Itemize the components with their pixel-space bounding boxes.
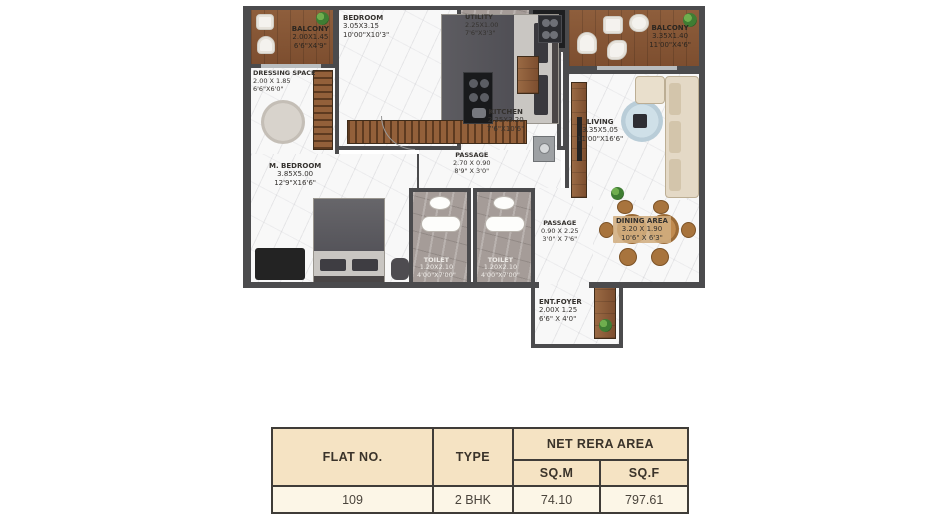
- balcony-chair-icon: [629, 14, 649, 32]
- door-swing-icon: [381, 116, 415, 150]
- bed-icon: [313, 198, 385, 284]
- floor-plan: BALCONY 2.00X1.45 6'6"X4'9" DRESSING SPA…: [243, 4, 705, 350]
- dining-chair-icon: [599, 222, 614, 238]
- outer-wall-right: [699, 6, 705, 288]
- room-dim-ft: 10'6" X 6'3": [616, 234, 668, 242]
- room-label: M. BEDROOM 3.85X5.00 12'9"X16'6": [269, 162, 321, 187]
- col-header-net-rera-area: NET RERA AREA: [513, 428, 688, 460]
- room-dim-m: 2.25X3.20: [487, 116, 524, 124]
- room-balcony-left: BALCONY 2.00X1.45 6'6"X4'9": [247, 6, 337, 68]
- rug-icon: [261, 100, 305, 144]
- room-dim-m: 3.85X5.00: [269, 170, 321, 178]
- outer-wall-bottom-right: [589, 282, 705, 288]
- washing-machine-icon: [533, 136, 555, 162]
- cell-flat-no: 109: [272, 486, 433, 513]
- room-name: ENT.FOYER: [539, 298, 582, 306]
- sofa-icon: [665, 76, 699, 198]
- room-label: LIVING 3.35X5.05 11'00"X16'6": [577, 118, 623, 143]
- room-label: TOILET 1.20X2.10 4'00"X7'00": [417, 257, 456, 280]
- room-dim-ft: 11'00"X4'6": [649, 41, 691, 49]
- dining-chair-icon: [651, 248, 669, 266]
- room-name: KITCHEN: [487, 108, 524, 116]
- room-name: LIVING: [577, 118, 623, 126]
- room-balcony-right: BALCONY 3.35X1.40 11'00"X4'6": [565, 6, 705, 70]
- col-header-flat-no: FLAT NO.: [272, 428, 433, 486]
- room-dim-ft: 12'9"X16'6": [269, 179, 321, 187]
- room-dim-m: 2.00X1.45: [292, 33, 329, 41]
- col-header-sqf: SQ.F: [600, 460, 688, 486]
- room-dim-ft: 4'00"X7'00": [417, 272, 456, 280]
- rug-icon: [621, 100, 663, 142]
- page: BALCONY 2.00X1.45 6'6"X4'9" DRESSING SPA…: [0, 0, 945, 525]
- dining-chair-icon: [653, 200, 669, 214]
- room-label: ENT.FOYER 2.00X 1.25 6'6" X 4'0": [539, 298, 582, 323]
- bathtub-icon: [421, 216, 461, 232]
- balcony-chair-icon: [607, 40, 627, 60]
- sliding-door: [261, 64, 321, 68]
- room-dim-ft: 6'6"X6'0": [253, 86, 315, 94]
- room-name: BALCONY: [292, 25, 329, 33]
- table-row: 109 2 BHK 74.10 797.61: [272, 486, 688, 513]
- room-label: KITCHEN 2.25X3.20 7'6"X10'6": [487, 108, 524, 133]
- balcony-chair-icon: [257, 36, 275, 54]
- room-dim-ft: 6'6"X4'9": [292, 42, 329, 50]
- wardrobe-icon: [313, 70, 333, 150]
- bench-icon: [255, 248, 305, 280]
- balcony-chair-icon: [256, 14, 274, 30]
- shoe-cabinet-icon: [594, 287, 616, 339]
- room-dressing-space: DRESSING SPACE 2.00 X 1.85 6'6"X6'0": [247, 64, 339, 154]
- room-name: M. BEDROOM: [269, 162, 321, 170]
- outer-wall-left: [243, 6, 249, 288]
- room-dim-ft: 11'00"X16'6": [577, 135, 623, 143]
- room-dim-m: 3.20 X 1.90: [616, 225, 668, 233]
- balcony-chair-icon: [603, 16, 623, 34]
- room-dim-m: 2.00X 1.25: [539, 306, 582, 314]
- room-name: BALCONY: [649, 24, 691, 32]
- col-header-sqm: SQ.M: [513, 460, 601, 486]
- dining-chair-icon: [681, 222, 696, 238]
- cell-sqm: 74.10: [513, 486, 601, 513]
- room-dim-ft: 4'00"X7'00": [481, 272, 520, 280]
- room-label: BEDROOM 3.05X3.15 10'00"X10'3": [343, 14, 389, 39]
- room-toilet-1: TOILET 1.20X2.10 4'00"X7'00": [409, 188, 471, 288]
- room-label: DRESSING SPACE 2.00 X 1.85 6'6"X6'0": [253, 70, 315, 93]
- sliding-door: [597, 66, 677, 70]
- room-dim-ft: 7'6"X3'3": [465, 30, 498, 38]
- dining-chair-icon: [617, 200, 633, 214]
- room-label: PASSAGE 2.70 X 0.90 8'9" X 3'0": [453, 152, 491, 175]
- room-ent-foyer: ENT.FOYER 2.00X 1.25 6'6" X 4'0": [531, 284, 623, 348]
- room-dim-ft: 6'6" X 4'0": [539, 315, 582, 323]
- room-name: BEDROOM: [343, 14, 389, 22]
- room-passage-v: PASSAGE 0.90 X 2.25 3'0" X 7'6": [535, 188, 593, 288]
- room-label: BALCONY 3.35X1.40 11'00"X4'6": [649, 24, 691, 49]
- outer-wall-bottom-left: [243, 282, 539, 288]
- room-dim-m: 3.35X5.05: [577, 126, 623, 134]
- bathtub-icon: [485, 216, 525, 232]
- plant-icon: [599, 319, 612, 332]
- washbasin-icon: [429, 196, 451, 210]
- room-label: PASSAGE 0.90 X 2.25 3'0" X 7'6": [541, 220, 579, 243]
- stove-icon: [538, 15, 562, 43]
- rera-area-table: FLAT NO. TYPE NET RERA AREA SQ.M SQ.F 10…: [271, 427, 689, 514]
- cell-sqf: 797.61: [600, 486, 688, 513]
- room-toilet-2: TOILET 1.20X2.10 4'00"X7'00": [473, 188, 535, 288]
- room-living: LIVING 3.35X5.05 11'00"X16'6": [565, 70, 705, 204]
- room-label: DINING AREA 3.20 X 1.90 10'6" X 6'3": [613, 216, 671, 243]
- room-label: BALCONY 2.00X1.45 6'6"X4'9": [292, 25, 329, 50]
- room-dim-ft: 7'6"X10'6": [487, 125, 524, 133]
- col-header-type: TYPE: [433, 428, 513, 486]
- room-m-bedroom: M. BEDROOM 3.85X5.00 12'9"X16'6": [247, 154, 421, 288]
- plant-icon: [611, 187, 624, 200]
- dining-chair-icon: [619, 248, 637, 266]
- sofa-chaise-icon: [635, 76, 665, 104]
- plant-icon: [316, 12, 329, 25]
- room-dim-m: 3.35X1.40: [649, 32, 691, 40]
- room-dim-ft: 10'00"X10'3": [343, 31, 389, 39]
- room-dim-ft: 3'0" X 7'6": [541, 236, 579, 244]
- balcony-chair-icon: [577, 32, 597, 54]
- room-label: UTILITY 2.25X1.00 7'6"X3'3": [465, 14, 498, 37]
- cell-type: 2 BHK: [433, 486, 513, 513]
- room-name: DINING AREA: [616, 217, 668, 225]
- room-dim-ft: 8'9" X 3'0": [453, 168, 491, 176]
- room-dim-m: 3.05X3.15: [343, 22, 389, 30]
- ottoman-icon: [391, 258, 409, 280]
- room-label: TOILET 1.20X2.10 4'00"X7'00": [481, 257, 520, 280]
- washbasin-icon: [493, 196, 515, 210]
- kitchen-shelf-icon: [517, 56, 539, 94]
- room-dining: DINING AREA 3.20 X 1.90 10'6" X 6'3": [591, 200, 705, 288]
